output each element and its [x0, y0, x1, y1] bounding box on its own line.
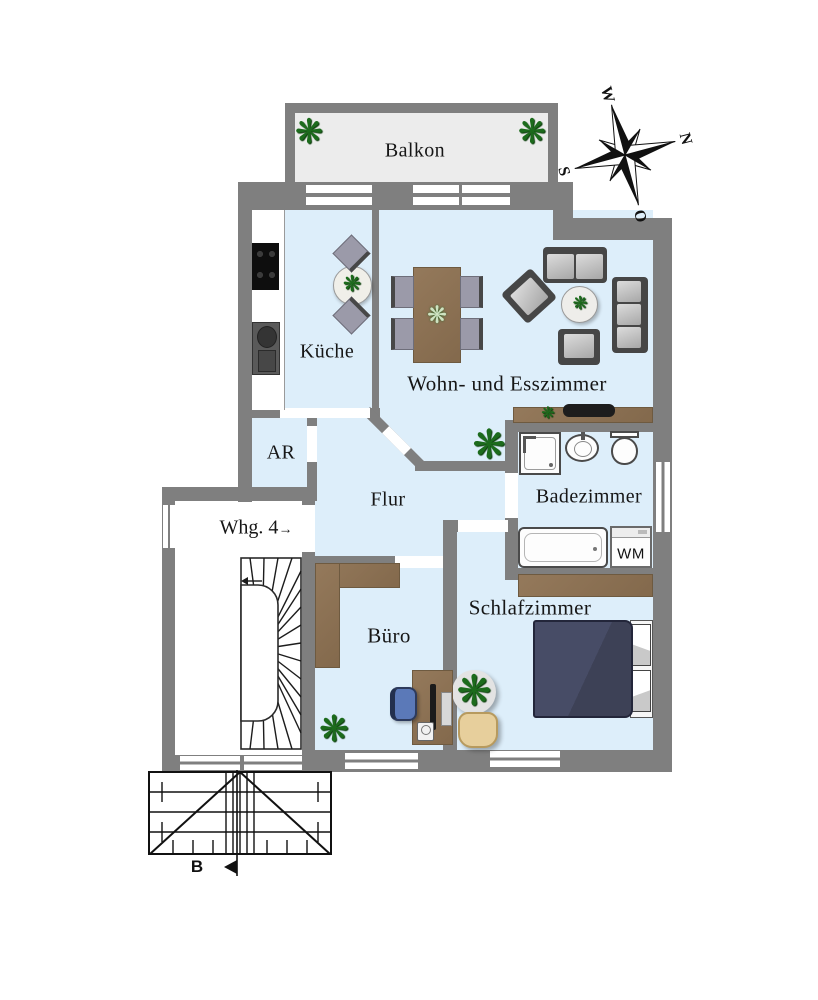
plant-icon: ❋: [541, 405, 554, 421]
floor-plan: ❋ ❋ Balkon: [0, 0, 818, 1000]
window: [180, 756, 240, 770]
chair-icon: [460, 318, 483, 350]
compass-east-label: O: [630, 208, 650, 224]
washing-machine-label: WM: [617, 546, 645, 563]
winder-stairs: [240, 557, 302, 750]
printer-icon: [417, 722, 434, 741]
window: [490, 751, 560, 767]
sofa-icon: [612, 277, 648, 353]
kitchen-sink-icon: [252, 322, 280, 375]
plant-icon: ❋: [456, 670, 491, 712]
compass-main-points: [561, 91, 688, 218]
washing-machine: WM: [610, 526, 652, 568]
door-opening: [280, 408, 370, 418]
kitchen-counter: [252, 210, 285, 410]
office-shelf: [315, 563, 340, 668]
window: [345, 753, 418, 769]
room-label-buero: Büro: [367, 624, 411, 649]
window: [413, 185, 459, 205]
wall: [162, 487, 317, 501]
plant-icon: ❋: [518, 115, 547, 149]
tv-icon: [563, 404, 615, 417]
compass-west-label: W: [597, 85, 618, 105]
door-opening: [395, 556, 443, 568]
wall: [238, 182, 558, 210]
sofa-icon: [543, 247, 607, 283]
plant-icon: ❋: [427, 303, 447, 327]
section-label: B: [191, 857, 203, 877]
window: [462, 185, 510, 205]
window: [163, 505, 175, 548]
room-label-schlafzimmer: Schlafzimmer: [469, 596, 592, 621]
room-label-kueche: Küche: [300, 341, 354, 364]
apartment-number: Whg. 4: [220, 517, 279, 539]
window: [306, 185, 372, 205]
chair-icon: [391, 276, 414, 308]
compass-rose-icon: N O S W: [560, 85, 690, 225]
toilet-icon: [608, 431, 641, 466]
wardrobe: [518, 574, 653, 597]
plant-icon: ❋: [472, 425, 506, 465]
basket-chair-icon: [458, 712, 498, 748]
window: [244, 756, 302, 770]
room-label-balkon: Balkon: [385, 140, 445, 163]
window: [656, 462, 670, 532]
bed-icon: [533, 620, 653, 718]
cooktop-icon: [252, 243, 279, 290]
door-opening: [505, 473, 518, 518]
exterior-stairs: [148, 770, 332, 880]
wall: [238, 182, 252, 502]
washbasin-icon: [565, 434, 599, 462]
plant-icon: ❋: [319, 712, 349, 748]
door-opening: [307, 426, 317, 462]
door-opening: [458, 520, 508, 532]
plant-icon: ❋: [295, 115, 324, 149]
plant-icon: ❋: [572, 295, 587, 313]
wall: [285, 103, 295, 185]
room-label-badezimmer: Badezimmer: [536, 486, 642, 509]
office-chair-icon: [390, 687, 417, 721]
section-arrow-icon: [224, 860, 237, 874]
entry-arrow-icon: →: [278, 523, 292, 538]
door-opening: [302, 505, 315, 552]
apartment-entry-label: Whg. 4→: [220, 517, 293, 540]
wall: [372, 210, 379, 410]
compass-north-label: N: [676, 131, 696, 147]
room-label-wohnzimmer: Wohn- und Esszimmer: [407, 372, 607, 397]
bathtub-icon: [518, 527, 608, 568]
plant-icon: ❋: [343, 274, 361, 296]
room-label-flur: Flur: [371, 489, 406, 512]
keyboard-icon: [441, 692, 452, 726]
shower-icon: [519, 432, 561, 475]
chair-icon: [391, 318, 414, 350]
armchair-icon: [558, 329, 600, 365]
chair-icon: [460, 276, 483, 308]
room-label-ar: AR: [267, 442, 296, 465]
